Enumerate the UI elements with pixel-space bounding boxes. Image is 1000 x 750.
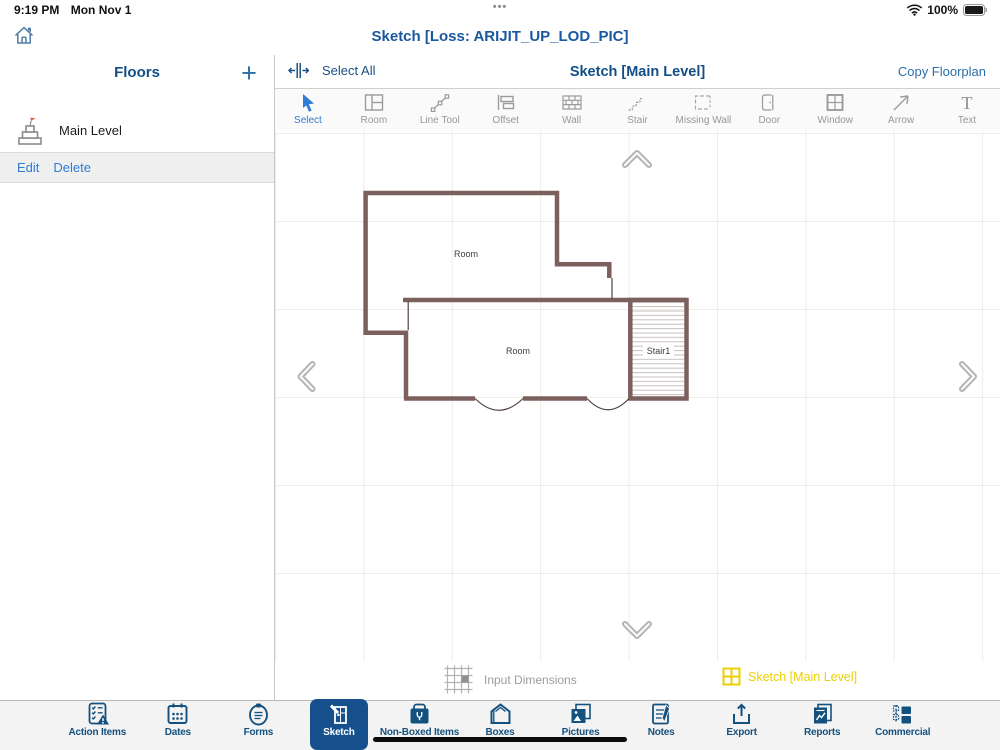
tool-stair[interactable]: Stair xyxy=(605,89,671,130)
edit-floor-button[interactable]: Edit xyxy=(17,160,39,175)
select-cursor-icon xyxy=(296,92,320,114)
battery-icon xyxy=(963,4,988,16)
tool-select[interactable]: Select xyxy=(275,89,341,130)
stair-label: Stair1 xyxy=(647,346,671,356)
tab-notes[interactable]: Notes xyxy=(621,701,702,750)
tool-arrow[interactable]: Arrow xyxy=(868,89,934,130)
pan-up-button[interactable] xyxy=(625,153,649,165)
offset-icon xyxy=(494,92,518,114)
sketch-main-area: Select All Sketch [Main Level] Copy Floo… xyxy=(275,55,1000,700)
input-dimensions-button[interactable]: Input Dimensions xyxy=(443,664,577,695)
pan-left-button[interactable] xyxy=(301,364,313,389)
floor-level-icon xyxy=(16,114,44,147)
arrow-icon xyxy=(889,92,913,114)
drawing-toolbar: Select Room xyxy=(275,89,1000,130)
room-label-2: Room xyxy=(506,346,530,356)
floor-actions-row: Edit Delete xyxy=(0,152,274,183)
floorplan-drawing: Room Room Stair1 xyxy=(275,130,1000,661)
room-icon xyxy=(362,92,386,114)
room-label-1: Room xyxy=(454,249,478,259)
export-icon xyxy=(728,702,755,727)
door-icon xyxy=(757,92,781,114)
non-boxed-items-icon xyxy=(406,702,433,727)
stair-icon xyxy=(625,92,649,114)
active-sketch-badge[interactable]: Sketch [Main Level] xyxy=(722,667,857,686)
pan-down-button[interactable] xyxy=(625,624,649,636)
wall-icon xyxy=(560,92,584,114)
forms-icon xyxy=(245,702,272,727)
missing-wall-icon xyxy=(691,92,715,114)
battery-percent: 100% xyxy=(927,3,958,17)
floors-sidebar: Floors + Main Level Edit Delete xyxy=(0,55,275,700)
tool-offset[interactable]: Offset xyxy=(473,89,539,130)
status-right-cluster: 100% xyxy=(907,3,988,17)
sketch-icon xyxy=(325,702,352,727)
active-sketch-label: Sketch [Main Level] xyxy=(748,670,857,684)
action-items-icon xyxy=(84,702,111,727)
text-icon: T xyxy=(955,92,979,114)
sketch-canvas[interactable]: Room Room Stair1 xyxy=(275,130,1000,661)
canvas-footer: Input Dimensions Sketch [Main Level] xyxy=(275,661,1000,700)
tab-sketch[interactable]: Sketch xyxy=(299,701,380,750)
copy-floorplan-button[interactable]: Copy Floorplan xyxy=(898,64,986,79)
line-tool-icon xyxy=(428,92,452,114)
svg-text:T: T xyxy=(962,93,973,113)
tab-action-items[interactable]: Action Items xyxy=(57,701,138,750)
tool-line[interactable]: Line Tool xyxy=(407,89,473,130)
commercial-icon xyxy=(889,702,916,727)
canvas-header: Select All Sketch [Main Level] Copy Floo… xyxy=(275,55,1000,89)
tab-forms[interactable]: Forms xyxy=(218,701,299,750)
sketch-level-title: Sketch [Main Level] xyxy=(275,64,1000,80)
tab-boxes[interactable]: Boxes xyxy=(460,701,541,750)
window-icon xyxy=(823,92,847,114)
tab-pictures[interactable]: Pictures xyxy=(540,701,621,750)
app-header: Sketch [Loss: ARIJIT_UP_LOD_PIC] xyxy=(0,20,1000,55)
multitask-dots-icon: ••• xyxy=(0,1,1000,13)
calendar-icon xyxy=(164,702,191,727)
floors-title: Floors xyxy=(0,64,274,81)
notes-icon xyxy=(648,702,675,727)
app-screen: 9:19 PM Mon Nov 1 ••• 100% xyxy=(0,0,1000,750)
input-dimensions-icon xyxy=(443,664,474,695)
floor-name: Main Level xyxy=(59,123,122,138)
status-bar: 9:19 PM Mon Nov 1 ••• 100% xyxy=(0,0,1000,20)
tab-dates[interactable]: Dates xyxy=(138,701,219,750)
tab-reports[interactable]: Reports xyxy=(782,701,863,750)
bottom-tab-bar: Action Items Dates xyxy=(0,700,1000,750)
tool-window[interactable]: Window xyxy=(802,89,868,130)
tool-text[interactable]: T Text xyxy=(934,89,1000,130)
tool-door[interactable]: Door xyxy=(736,89,802,130)
page-title: Sketch [Loss: ARIJIT_UP_LOD_PIC] xyxy=(0,28,1000,45)
floor-list-item[interactable]: Main Level xyxy=(0,108,274,152)
boxes-icon xyxy=(487,702,514,727)
floors-header: Floors + xyxy=(0,55,274,92)
tab-commercial[interactable]: Commercial xyxy=(862,701,943,750)
input-dimensions-label: Input Dimensions xyxy=(484,673,577,687)
pictures-icon xyxy=(567,702,594,727)
pan-right-button[interactable] xyxy=(962,364,974,389)
home-indicator[interactable] xyxy=(373,737,627,742)
reports-icon xyxy=(809,702,836,727)
tool-missing-wall[interactable]: Missing Wall xyxy=(670,89,736,130)
tool-wall[interactable]: Wall xyxy=(539,89,605,130)
wifi-icon xyxy=(907,4,922,16)
active-sketch-icon xyxy=(722,667,741,686)
tool-room[interactable]: Room xyxy=(341,89,407,130)
delete-floor-button[interactable]: Delete xyxy=(53,160,91,175)
tab-export[interactable]: Export xyxy=(701,701,782,750)
tab-non-boxed-items[interactable]: Non-Boxed Items xyxy=(379,701,460,750)
add-floor-button[interactable]: + xyxy=(234,56,264,90)
